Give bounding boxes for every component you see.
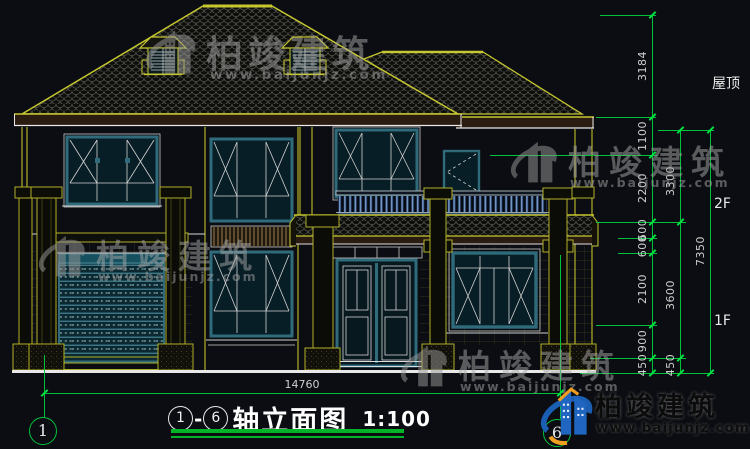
title-underline-thin [171, 436, 404, 438]
watermark-logo-icon [142, 22, 200, 84]
eave-fascia [14, 114, 594, 128]
window-2f-left [62, 134, 162, 207]
axis-bubble-1: 1 [29, 417, 57, 445]
brand-url: www.baijunjz.com [596, 420, 750, 436]
level-label-roof: 屋顶 [712, 73, 740, 93]
window-2f-middle [333, 127, 420, 200]
window-1f-right [445, 249, 548, 333]
dim-14760: 14760 [272, 378, 332, 391]
brand-badge: 柏竣建筑 www.baijunjz.com [538, 381, 750, 449]
dim-7350: 7350 [693, 211, 709, 291]
watermark-top: 柏竣建筑 www.baijunjz.com [142, 22, 392, 86]
watermark-logo-icon [34, 228, 90, 286]
brand-name: 柏竣建筑 [595, 385, 719, 424]
title-underline-thick [171, 429, 404, 433]
drawing-scale: 1:100 [362, 407, 431, 431]
title-bubble-1: 1 [168, 406, 193, 431]
watermark-logo-icon [396, 338, 452, 396]
watermark-right: 柏竣建筑 www.baijunjz.com [506, 134, 746, 194]
level-label-1f: 1F [714, 313, 731, 329]
watermark-logo-icon [506, 134, 562, 192]
dim-3600: 3600 [663, 255, 679, 335]
title-dash: - [194, 407, 202, 431]
cad-canvas: 3184 1100 2200 600 600 2100 900 450 3300… [0, 0, 750, 449]
level-label-2f: 2F [714, 196, 731, 212]
watermark-left: 柏竣建筑 www.baijunjz.com [34, 228, 274, 288]
dim-3184: 3184 [635, 26, 651, 106]
brand-logo-icon [540, 383, 594, 447]
title-bubble-6: 6 [203, 406, 228, 431]
balcony-door [444, 151, 479, 193]
entrance-transom [332, 247, 422, 258]
